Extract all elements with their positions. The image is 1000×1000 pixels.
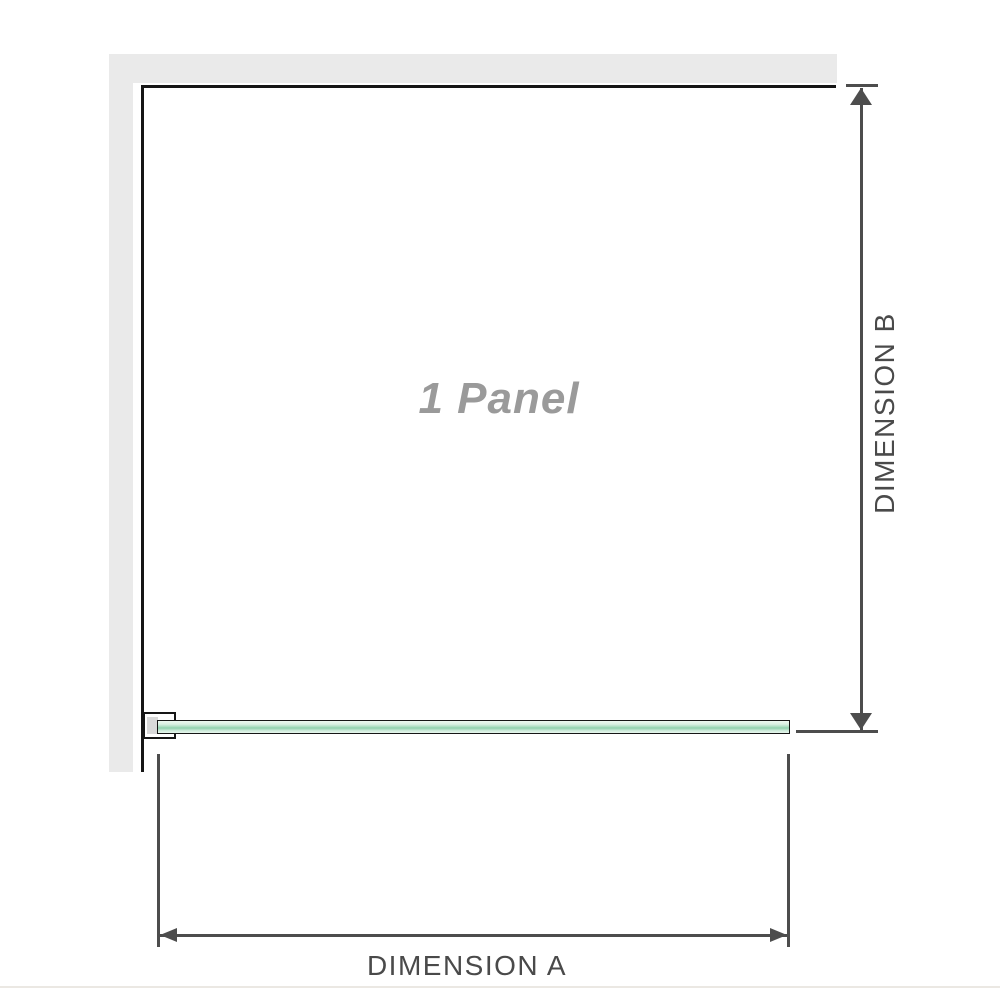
panel-dimension-diagram: 1 Panel DIMENSION B DIMENSION A xyxy=(0,0,1000,1000)
glass-panel xyxy=(157,720,790,734)
dimension-b-line xyxy=(860,88,863,731)
dimension-a-extension-right xyxy=(787,754,790,947)
dimension-b-bottom-tick xyxy=(796,730,878,733)
arrow-down-icon xyxy=(850,713,872,730)
panel-count-label: 1 Panel xyxy=(418,374,579,424)
dimension-a-label: DIMENSION A xyxy=(367,950,567,982)
arrow-right-icon xyxy=(770,928,787,942)
dimension-b-label: DIMENSION B xyxy=(869,312,901,514)
dimension-b-top-tick xyxy=(846,84,878,87)
dimension-a-extension-left xyxy=(157,754,160,947)
wall-band-top xyxy=(109,54,837,83)
dimension-a-line xyxy=(160,934,787,937)
bottom-divider xyxy=(0,986,1000,988)
arrow-left-icon xyxy=(160,928,177,942)
wall-band-left xyxy=(109,54,133,772)
arrow-up-icon xyxy=(850,88,872,105)
